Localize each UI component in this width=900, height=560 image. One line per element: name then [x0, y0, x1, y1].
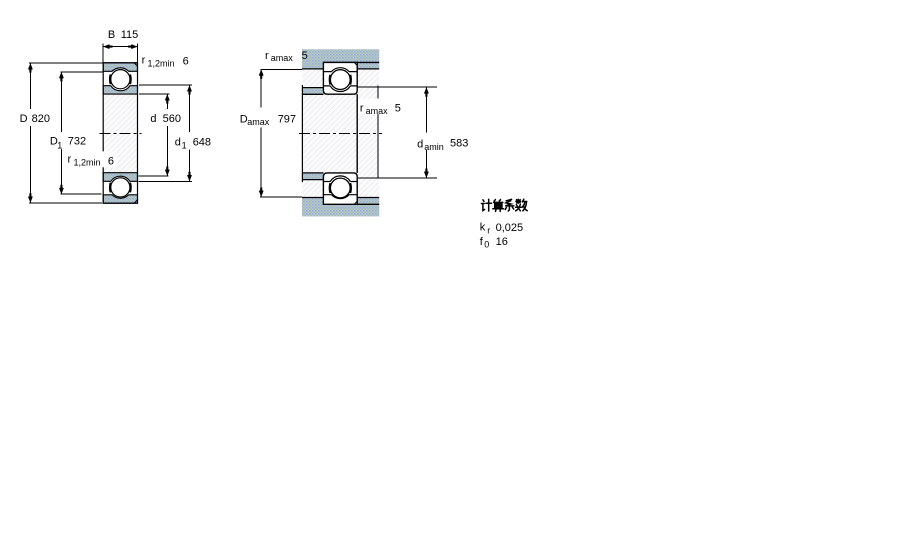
svg-text:r: r — [487, 225, 490, 235]
svg-text:d: d — [175, 137, 181, 149]
svg-text:d: d — [417, 138, 423, 150]
svg-text:16: 16 — [496, 236, 508, 248]
svg-text:k: k — [480, 222, 486, 234]
svg-text:0,025: 0,025 — [496, 222, 524, 234]
svg-text:r: r — [360, 102, 364, 114]
svg-text:1,2min: 1,2min — [74, 157, 101, 167]
svg-text:0: 0 — [484, 240, 489, 250]
svg-text:732: 732 — [68, 136, 86, 148]
svg-text:amax: amax — [271, 53, 294, 63]
svg-text:6: 6 — [108, 156, 114, 168]
svg-text:1,2min: 1,2min — [148, 58, 175, 68]
svg-text:amax: amax — [366, 106, 389, 116]
svg-text:r: r — [68, 154, 72, 166]
svg-text:r: r — [265, 50, 269, 62]
svg-text:amin: amin — [424, 142, 444, 152]
svg-text:1: 1 — [182, 141, 187, 151]
svg-text:560: 560 — [163, 113, 181, 125]
svg-text:D: D — [20, 113, 28, 125]
svg-text:115: 115 — [121, 29, 139, 41]
svg-text:5: 5 — [395, 102, 401, 114]
svg-text:583: 583 — [450, 138, 468, 150]
svg-text:r: r — [142, 54, 146, 66]
svg-text:amax: amax — [247, 117, 270, 127]
svg-text:1: 1 — [57, 140, 62, 150]
svg-text:B: B — [108, 29, 115, 41]
svg-text:5: 5 — [302, 50, 308, 62]
svg-text:797: 797 — [278, 113, 296, 125]
svg-text:820: 820 — [32, 113, 50, 125]
svg-text:6: 6 — [183, 55, 189, 67]
svg-text:d: d — [150, 113, 156, 125]
svg-text:648: 648 — [193, 137, 211, 149]
